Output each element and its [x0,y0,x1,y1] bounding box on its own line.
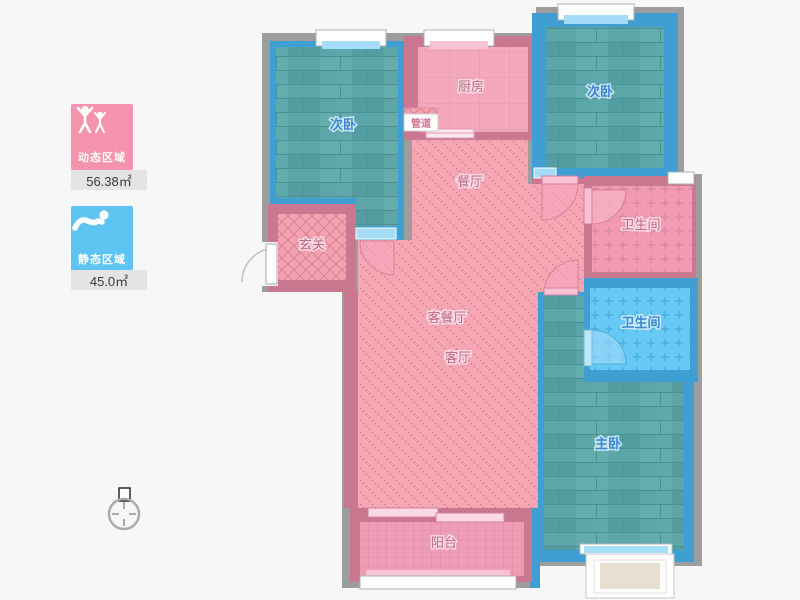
bay-window-master [586,554,674,598]
window-balcony [360,570,516,589]
compass-icon [109,488,139,529]
legend-card-static: 静态区域 [71,206,133,272]
pipe-duct-label: 管道 [411,117,431,130]
window-bedroom-left [316,30,386,49]
window-master-sill [580,544,672,554]
living-left-wall [344,292,358,508]
window-bedroom-right [558,4,634,24]
legend-static-value: 45.0㎡ [71,270,147,290]
master-bedroom-label: 主卧 [595,436,621,451]
living-label: 客厅 [445,350,471,365]
window-kitchen [424,30,494,49]
sleeping-person-icon [71,206,133,251]
dining-label: 餐厅 [457,174,483,189]
window-bedroom-left-ext [356,228,396,239]
kitchen-label: 厨房 [458,79,484,94]
legend-static-label: 静态区域 [78,251,126,272]
bedroom-right-label: 次卧 [587,84,613,99]
floorplan-canvas: 管道 次卧 次卧 厨房 餐厅 玄关 客餐厅 客厅 卫生间 卫生间 主卧 阳台 [0,0,800,600]
bedroom-left-label: 次卧 [330,117,356,132]
legend-dynamic-label: 动态区域 [78,149,126,170]
entrance-door [242,242,278,286]
floorplan-viewer: 管道 次卧 次卧 厨房 餐厅 玄关 客餐厅 客厅 卫生间 卫生间 主卧 阳台 [0,0,800,600]
window-bathroom-upper [668,172,694,184]
living-dining-label: 客餐厅 [427,310,466,325]
people-arms-up-icon [71,104,133,149]
legend-dynamic-value: 56.38㎡ [71,170,147,190]
pipe-duct: 管道 [404,108,438,131]
bathroom-lower-label: 卫生间 [621,315,660,330]
bathroom-upper-label: 卫生间 [621,217,660,232]
foyer-label: 玄关 [299,237,325,252]
legend-card-dynamic: 动态区域 [71,104,133,170]
balcony-label: 阳台 [431,535,457,550]
